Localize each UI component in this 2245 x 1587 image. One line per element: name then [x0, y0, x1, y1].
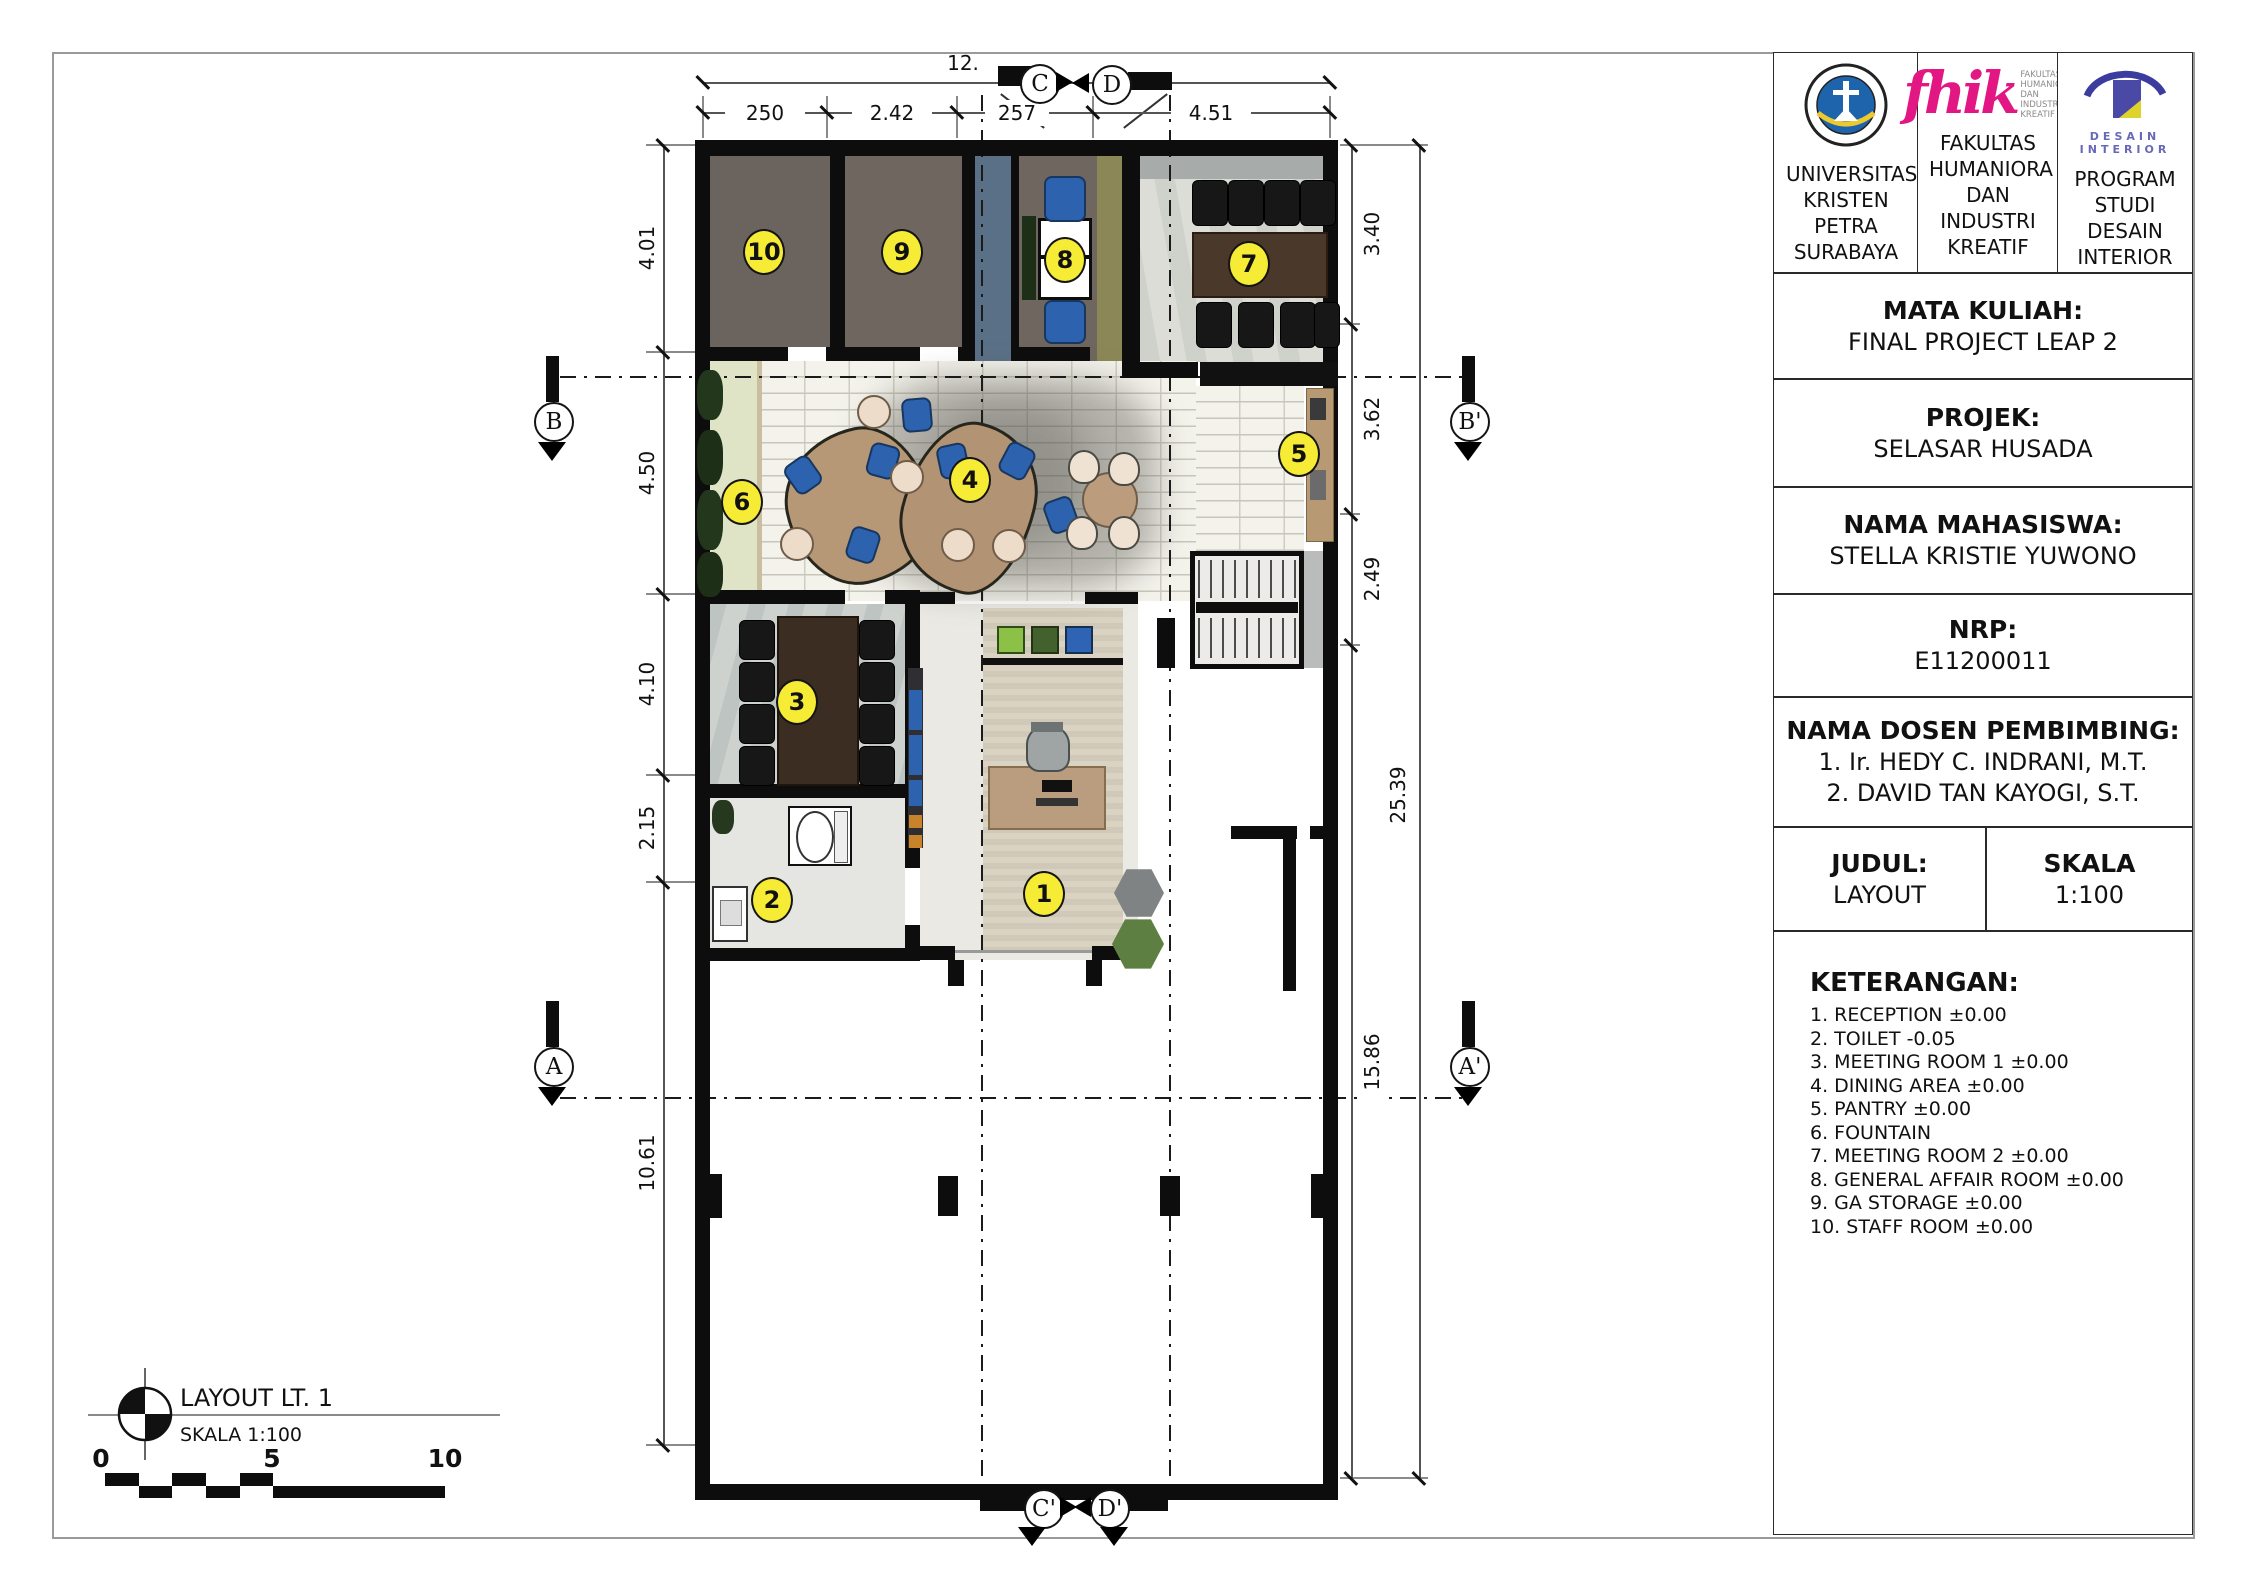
dimension-line — [1351, 145, 1353, 1478]
dim-label: 4.01 — [634, 208, 660, 288]
keterangan-item: 7. MEETING ROOM 2 ±0.00 — [1810, 1145, 2069, 1169]
titleblock-cell-university: UNIVERSITAS KRISTEN PETRA SURABAYA — [1773, 52, 1919, 273]
dim-label: 4.51 — [1171, 100, 1251, 126]
section-arrow — [538, 1087, 566, 1106]
keterangan-item: 1. RECEPTION ±0.00 — [1810, 1004, 2007, 1028]
wall-band1e — [1122, 347, 1140, 378]
wall-toilet-bottom — [695, 948, 920, 961]
grid-arrow — [1072, 73, 1089, 93]
field-value: STELLA KRISTIE YUWONO — [1829, 541, 2136, 572]
section-arrow — [1454, 442, 1482, 461]
wall-entrance-left — [920, 946, 955, 960]
scalebar-segment — [206, 1486, 240, 1498]
chair-blue — [901, 397, 934, 433]
pilaster-left — [709, 1174, 722, 1218]
section-bubble-b: B — [534, 402, 574, 442]
desain-interior-wordmark: DESAIN INTERIOR — [2080, 130, 2171, 156]
dimension-line — [663, 145, 665, 1445]
chair-blue — [1044, 300, 1086, 344]
wall-rmid-h2 — [1310, 826, 1338, 839]
wall-band1 — [695, 347, 788, 361]
titleblock-field-projek: PROJEK: SELASAR HUSADA — [1773, 379, 2193, 487]
field-value: LAYOUT — [1833, 880, 1926, 911]
dim-label: 250 — [725, 100, 805, 126]
field-label: JUDUL: — [1831, 848, 1928, 880]
pantry-counter-top — [1200, 362, 1338, 386]
room-number: 8 — [1057, 246, 1074, 274]
dim-label: 2.49 — [1359, 539, 1385, 619]
desain-interior-logo — [2081, 56, 2169, 128]
grid-bubble-d: D — [1092, 65, 1132, 105]
drawing-title: LAYOUT LT. 1 — [180, 1384, 333, 1412]
scalebar-number-10: 10 — [415, 1444, 475, 1473]
field-label: SKALA — [2043, 848, 2135, 880]
extension-line — [826, 96, 828, 138]
extension-line — [646, 351, 696, 353]
grid-letter: D — [1103, 72, 1121, 98]
keterangan-item: 10. STAFF ROOM ±0.00 — [1810, 1216, 2033, 1240]
reception-shelf — [983, 658, 1123, 665]
scalebar-segment — [240, 1473, 273, 1486]
titleblock-field-nama-mahasiswa: NAMA MAHASISWA: STELLA KRISTIE YUWONO — [1773, 487, 2193, 594]
column — [1160, 1176, 1180, 1216]
toilet-tank — [834, 811, 848, 863]
wall-rm9-corridor — [962, 155, 975, 361]
scalebar-segment — [273, 1486, 445, 1498]
plant — [697, 430, 723, 485]
plant — [712, 800, 734, 834]
dim-label: 15.86 — [1359, 1022, 1385, 1102]
extension-line — [646, 774, 696, 776]
dim-label: 2.42 — [852, 100, 932, 126]
grid-letter: D' — [1098, 1496, 1123, 1522]
locker-blue — [909, 780, 922, 806]
room-bubble-6: 6 — [721, 479, 763, 525]
scalebar-number-0: 0 — [71, 1444, 131, 1473]
room-number: 9 — [894, 238, 911, 266]
room-bubble-5: 5 — [1278, 431, 1320, 477]
grid-letter: C — [1031, 71, 1049, 97]
dimension-line — [1419, 145, 1421, 1478]
room-bubble-9: 9 — [881, 229, 923, 275]
stool — [890, 460, 924, 494]
extension-line — [646, 1444, 696, 1446]
keterangan-title: KETERANGAN: — [1810, 968, 2019, 998]
chair-black — [1300, 180, 1336, 226]
keterangan-item: 5. PANTRY ±0.00 — [1810, 1098, 1971, 1122]
room-number: 4 — [962, 466, 979, 494]
dim-label: 2.15 — [634, 788, 660, 868]
chair-cream — [1108, 452, 1140, 486]
petra-logo — [1804, 61, 1888, 151]
chair-black — [859, 746, 895, 786]
room-number: 6 — [734, 488, 751, 516]
stair-treads — [1198, 618, 1296, 658]
keterangan-item: 4. DINING AREA ±0.00 — [1810, 1075, 2025, 1099]
column — [938, 1176, 958, 1216]
plant — [697, 370, 723, 420]
grid-bubble-c: C — [1020, 64, 1060, 104]
keterangan-item: 8. GENERAL AFFAIR ROOM ±0.00 — [1810, 1169, 2124, 1193]
titleblock-field-skala: SKALA 1:100 — [1986, 827, 2193, 931]
dim-label: 10.61 — [634, 1123, 660, 1203]
field-label: NRP: — [1949, 614, 2018, 646]
field-label: MATA KULIAH: — [1883, 295, 2083, 327]
stool — [941, 528, 975, 562]
wall-bottom — [695, 1484, 1338, 1500]
extension-line — [646, 881, 696, 883]
chair-cream — [1068, 450, 1100, 484]
grid-line-c — [981, 95, 983, 1490]
dim-label: 4.50 — [634, 433, 660, 513]
stair-treads — [1198, 560, 1296, 598]
section-bar — [1462, 356, 1475, 402]
locker-blue — [909, 735, 922, 775]
room-bubble-3: 3 — [776, 679, 818, 725]
room-number: 3 — [789, 688, 806, 716]
dim-label: 25.39 — [1385, 755, 1411, 835]
grid-letter: B — [546, 409, 563, 435]
room-bubble-1: 1 — [1023, 871, 1065, 917]
section-arrow — [1454, 1087, 1482, 1106]
stool — [780, 527, 814, 561]
extension-line — [646, 593, 696, 595]
chair-black — [859, 704, 895, 744]
scalebar-segment — [172, 1473, 206, 1486]
chair-black — [859, 620, 895, 660]
keterangan-item: 2. TOILET -0.05 — [1810, 1028, 1956, 1052]
dim-label-overall: 12. — [928, 50, 998, 76]
locker-blue — [909, 690, 922, 730]
section-bar — [546, 1001, 559, 1047]
scalebar-segment — [105, 1473, 139, 1486]
extension-line — [956, 96, 958, 138]
drawing-scale-note: SKALA 1:100 — [180, 1424, 302, 1446]
field-label: PROJEK: — [1926, 402, 2041, 434]
north-compass-icon — [117, 1386, 173, 1442]
wall-mr1-top-b — [885, 590, 920, 604]
chair-black — [1196, 302, 1232, 348]
chair-black — [739, 620, 775, 660]
room-bubble-2: 2 — [751, 877, 793, 923]
room-number: 2 — [764, 886, 781, 914]
section-arrow — [538, 442, 566, 461]
grid-letter: A' — [1459, 1054, 1482, 1080]
plant-strip — [1022, 216, 1036, 300]
floor-ga-olive-strip — [1097, 155, 1122, 361]
desk-keyboard — [1036, 798, 1078, 806]
section-bubble-a: A — [534, 1047, 574, 1087]
chair-black — [1192, 180, 1228, 226]
grid-arrow — [1074, 1497, 1091, 1517]
keterangan-item: 6. FOUNTAIN — [1810, 1122, 1931, 1146]
wall-band1c — [958, 347, 975, 361]
wall-top — [695, 140, 1338, 156]
program-name: PROGRAM STUDI DESAIN INTERIOR — [2069, 166, 2181, 270]
wall-reception-top-b — [1085, 592, 1138, 604]
reception-chair — [1026, 726, 1070, 772]
wall-rm8-rm7 — [1122, 155, 1140, 361]
waiting-seat-blue — [1065, 626, 1093, 654]
chair-cream — [1066, 516, 1098, 550]
pantry-appliance — [1310, 470, 1326, 500]
wall-band1d — [1011, 347, 1090, 361]
extension-line — [1329, 96, 1331, 138]
wall-rm10-rm9 — [830, 155, 845, 359]
titleblock-keterangan: KETERANGAN: 1. RECEPTION ±0.00 2. TOILET… — [1773, 931, 2193, 1535]
field-value: E11200011 — [1914, 646, 2051, 677]
wall-reception-top — [920, 592, 955, 604]
reception-chair-back — [1031, 722, 1063, 732]
titleblock-field-nrp: NRP: E11200011 — [1773, 594, 2193, 697]
chair-black — [1228, 180, 1264, 226]
grid-bubble-c2: C' — [1024, 1489, 1064, 1529]
gate-stub-left — [980, 1500, 1028, 1511]
wall-post-reception — [1157, 618, 1175, 668]
fhik-logo: fhik — [1903, 66, 2016, 120]
chair-black — [1314, 302, 1340, 348]
section-bar — [1128, 72, 1172, 90]
room-number: 1 — [1036, 880, 1053, 908]
toilet-sink-basin — [720, 900, 742, 926]
waiting-seat-darkgreen — [1031, 626, 1059, 654]
extension-line — [702, 96, 704, 138]
room-bubble-7: 7 — [1228, 241, 1270, 287]
dim-label: 4.10 — [634, 644, 660, 724]
desk-computer — [1042, 780, 1072, 792]
scalebar-segment — [139, 1486, 172, 1498]
entrance-stub-right — [1086, 960, 1102, 986]
drawing-sheet: 1 2 3 4 5 6 7 8 9 10 C D C' D' B B' A A'… — [0, 0, 2245, 1587]
room-number: 5 — [1291, 440, 1308, 468]
field-label: NAMA DOSEN PEMBIMBING: — [1786, 715, 2179, 747]
stool — [992, 529, 1026, 563]
wall-band1b — [826, 347, 920, 361]
pilaster-right — [1311, 1174, 1324, 1218]
chair-black — [739, 662, 775, 702]
university-name: UNIVERSITAS KRISTEN PETRA SURABAYA — [1786, 161, 1906, 265]
chair-blue — [1044, 176, 1086, 222]
toilet-bowl — [796, 811, 834, 863]
field-label: NAMA MAHASISWA: — [1843, 509, 2122, 541]
room-bubble-10: 10 — [743, 229, 785, 275]
keterangan-item: 3. MEETING ROOM 1 ±0.00 — [1810, 1051, 2069, 1075]
chair-black — [739, 704, 775, 744]
entrance-stub-left — [948, 960, 964, 986]
stool — [857, 395, 891, 429]
fountain-edge — [757, 361, 762, 601]
field-value: 1. Ir. HEDY C. INDRANI, M.T. 2. DAVID TA… — [1819, 747, 2148, 809]
entrance-threshold — [955, 950, 1092, 953]
floor-mr2-top-band — [1140, 155, 1324, 179]
scalebar-number-5: 5 — [242, 1444, 302, 1473]
room-bubble-8: 8 — [1044, 237, 1086, 283]
dim-label: 3.62 — [1359, 379, 1385, 459]
field-value: 1:100 — [2055, 880, 2124, 911]
titleblock-field-judul: JUDUL: LAYOUT — [1773, 827, 1986, 931]
grid-arrow — [1018, 1527, 1046, 1546]
room-number: 10 — [747, 238, 780, 266]
section-bubble-a2: A' — [1450, 1047, 1490, 1087]
grid-letter: A — [546, 1054, 563, 1080]
chair-black — [1280, 302, 1316, 348]
grid-arrow — [1100, 1527, 1128, 1546]
extension-line — [646, 144, 696, 146]
titleblock-field-dosen: NAMA DOSEN PEMBIMBING: 1. Ir. HEDY C. IN… — [1773, 697, 2193, 827]
waiting-seat-green — [997, 626, 1025, 654]
chair-black — [859, 662, 895, 702]
wall-corridor-rm8 — [1011, 155, 1019, 361]
grid-bubble-d2: D' — [1090, 1489, 1130, 1529]
faculty-name: FAKULTAS HUMANIORA DAN INDUSTRI KREATIF — [1929, 130, 2047, 260]
wall-left — [695, 140, 710, 1500]
grid-line-d — [1169, 95, 1171, 1490]
wall-rmid-h — [1231, 826, 1297, 839]
wall-toilet-top — [695, 784, 920, 798]
chair-black — [1238, 302, 1274, 348]
chair-cream — [1108, 516, 1140, 550]
titleblock-cell-faculty: fhik FAKULTAS HUMANIORA DAN INDUSTRI KRE… — [1917, 52, 2059, 273]
plant — [697, 552, 723, 597]
locker-orange — [909, 835, 922, 848]
pantry-appliance — [1310, 398, 1326, 420]
titleblock-field-mata-kuliah: MATA KULIAH: FINAL PROJECT LEAP 2 — [1773, 273, 2193, 379]
dim-label: 3.40 — [1359, 194, 1385, 274]
field-value: FINAL PROJECT LEAP 2 — [1848, 327, 2118, 358]
stair-rail — [1196, 602, 1298, 613]
section-bar — [1462, 1001, 1475, 1047]
chair-black — [739, 746, 775, 786]
chair-black — [1264, 180, 1300, 226]
section-bubble-b2: B' — [1450, 402, 1490, 442]
extension-line — [1092, 96, 1094, 138]
titleblock-cell-program: DESAIN INTERIOR PROGRAM STUDI DESAIN INT… — [2057, 52, 2193, 273]
wall-mr2-bottom — [1140, 362, 1198, 378]
section-bar — [546, 356, 559, 402]
locker-orange — [909, 815, 922, 828]
grid-letter: C' — [1032, 1496, 1056, 1522]
room-number: 7 — [1241, 250, 1258, 278]
keterangan-item: 9. GA STORAGE ±0.00 — [1810, 1192, 2023, 1216]
plant — [697, 490, 723, 550]
wall-rmid-v — [1283, 839, 1296, 991]
room-bubble-4: 4 — [949, 457, 991, 503]
field-value: SELASAR HUSADA — [1873, 434, 2092, 465]
grid-letter: B' — [1458, 409, 1481, 435]
grid-arrow — [1056, 72, 1073, 92]
